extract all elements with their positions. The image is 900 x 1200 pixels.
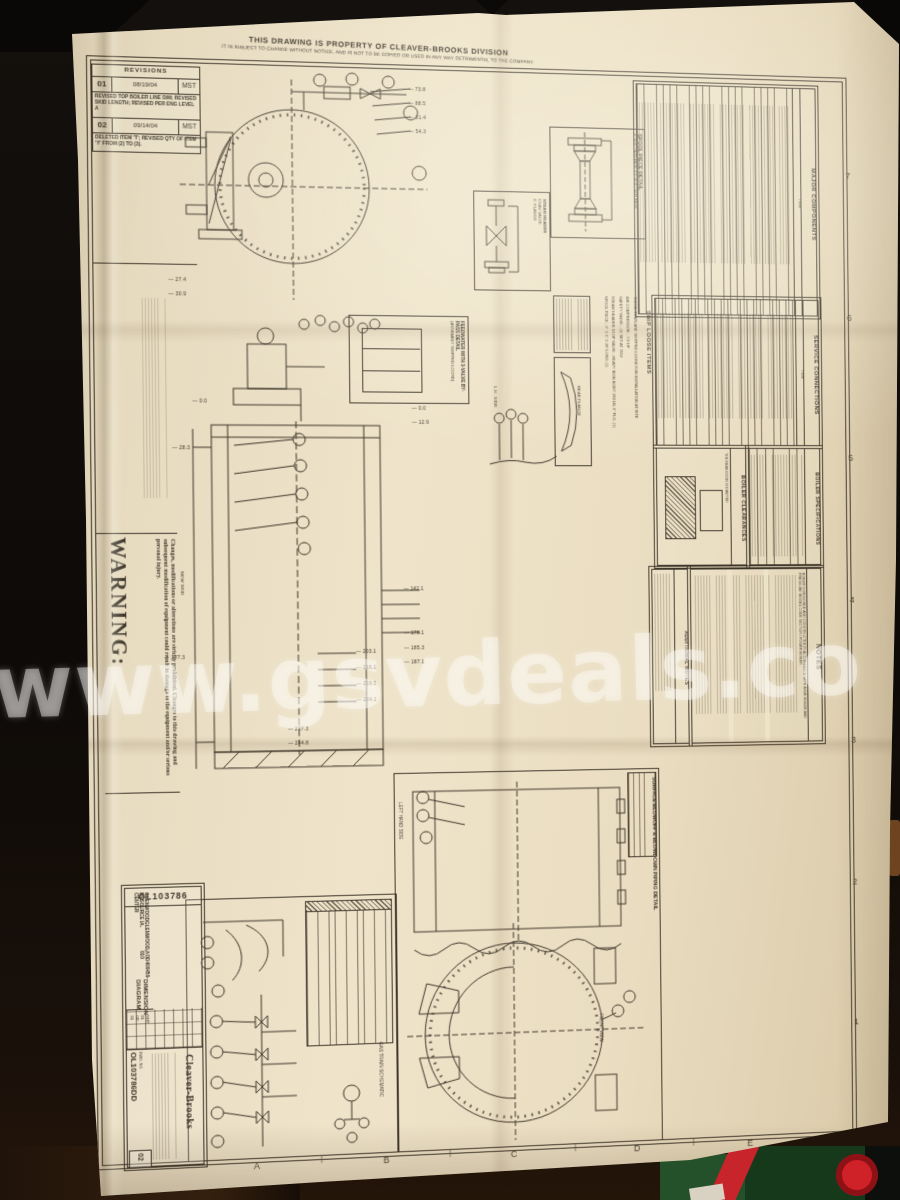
surface-blowoff-panel: SURFACE BLOWOFF & BLOWDOWN PIPING DETAIL… <box>393 768 662 1153</box>
service-connections-title: SERVICE CONNECTIONS <box>802 301 819 445</box>
dim-label: 28.3 <box>172 445 190 451</box>
lh-side-piping-drawing <box>485 404 561 474</box>
project-line2: GLENWOOD, IA. <box>129 921 150 952</box>
grid-number: 6 <box>847 313 852 323</box>
dwg-no-value: OL103786DD <box>129 1052 140 1163</box>
clearances-note: THE REAR DOOR IS DAVITED <box>724 453 729 559</box>
ship-loose-items: SHIP LOOSE ITEMS THESE ITEMS ARE SHIPPED… <box>594 294 652 476</box>
dim-label: 54.3 <box>409 129 426 135</box>
feedwater-detail-box: FEEDWATER WITH 3-VALVE BY-PASS DETAIL (A… <box>348 315 469 404</box>
table-row-text <box>751 455 803 557</box>
boiler-specifications-title: BOILER SPECIFICATIONS <box>804 449 820 564</box>
sheet-number: SHT 01 OF 01 <box>130 1015 151 1024</box>
grid-tick: | <box>321 1156 323 1163</box>
additional-notes-box: ADDITIONAL NOTES <box>651 569 689 745</box>
boiler-clearances-box: BOILER CLEARANCES THE REAR DOOR IS DAVIT… <box>656 448 747 566</box>
dim-label: 30.9 <box>168 291 186 297</box>
feedwater-inner-rect <box>362 328 423 393</box>
dim-label: 27.4 <box>168 277 186 283</box>
dim-label: 0.0 <box>192 398 207 404</box>
grid-number: 2 <box>853 877 858 887</box>
boiler-specifications-table: BOILER SPECIFICATIONS <box>748 448 821 565</box>
rev-no: 02 <box>93 118 113 133</box>
photo-of-blueprint: A B C D E | | | | 7 6 5 4 3 2 1 THIS DRA… <box>0 0 900 1200</box>
dim-label: 88.5 <box>408 101 425 107</box>
grid-letter: A <box>254 1161 260 1171</box>
clearances-diagram <box>665 476 696 539</box>
dim-label: 177.3 <box>164 655 185 661</box>
small-item-table-text <box>556 298 588 350</box>
dim-label: 12.9 <box>412 420 429 426</box>
rear-flange-label: REAR FLANGE <box>576 386 581 442</box>
table-row-text <box>657 313 794 419</box>
item-column-header: ITEM <box>795 301 805 445</box>
grid-number: 4 <box>850 595 855 605</box>
blowoff-views-drawing <box>394 769 661 1152</box>
dim-label: 203.1 <box>356 649 377 655</box>
dim-label: 142.1 <box>404 586 424 592</box>
table-row-text <box>639 102 792 265</box>
gas-train-panel: GAS TRAIN SCHEMATIC <box>185 894 399 1163</box>
grid-letter: C <box>511 1149 518 1159</box>
revision-number-box: 02 <box>129 1150 152 1169</box>
grid-number: 5 <box>848 453 853 463</box>
dim-label: 187.1 <box>404 659 424 665</box>
notes-text <box>654 574 673 692</box>
gas-train-drawing <box>186 895 398 1162</box>
clearances-diagram-rect <box>700 490 723 531</box>
feedwater-label: FEEDWATER WITH 3-VALVE BY-PASS DETAIL <box>455 321 466 399</box>
spool-piece-drawing <box>550 128 645 239</box>
rev-date: 09/14/04 <box>113 118 179 134</box>
wood-sliver <box>889 820 900 876</box>
dim-label: 81.4 <box>409 115 426 121</box>
dim-label: 244.8 <box>288 740 309 746</box>
project-line3: AOD400456-010 <box>129 951 150 980</box>
blueprint-sheet: A B C D E | | | | 7 6 5 4 3 2 1 THIS DRA… <box>0 0 900 1200</box>
rev-no: 01 <box>92 77 112 92</box>
dim-label: 73.8 <box>408 87 425 94</box>
dim-label: 224.1 <box>356 697 376 703</box>
grid-tick: | <box>575 1144 577 1151</box>
revision-number: 02 <box>136 1153 143 1161</box>
dim-label: 237.3 <box>288 726 309 732</box>
new-skid-label: NEW SKID <box>180 571 186 612</box>
project-line1: GLENWOOD RESOURCE CENTER <box>128 892 149 921</box>
feedwater-sublabel: (ASSEMBLY SHIPPED LOOSE) <box>450 321 456 399</box>
notes-text <box>695 575 797 714</box>
dim-label: 0.0 <box>412 406 426 412</box>
grid-letter: E <box>747 1138 753 1148</box>
grid-tick: | <box>449 1150 451 1157</box>
grid-number: 1 <box>854 1016 859 1026</box>
rear-flange-detail: REAR FLANGE <box>554 357 592 466</box>
dim-label: 219.1 <box>356 681 377 687</box>
grid-tick: | <box>693 1139 695 1146</box>
grid-letter: D <box>634 1143 640 1153</box>
grid-letter: B <box>383 1155 389 1165</box>
drawing-content: A B C D E | | | | 7 6 5 4 3 2 1 THIS DRA… <box>0 0 889 1200</box>
property-notice: THIS DRAWING IS PROPERTY OF CLEAVER-BROO… <box>186 32 568 67</box>
rear-flange-drawing <box>555 358 591 465</box>
notes-title: NOTES <box>806 569 822 741</box>
rev-date: 08/19/04 <box>112 77 178 93</box>
steam-header-label3: 6" FLANGE <box>532 199 538 285</box>
warning-title: WARNING: <box>105 537 134 791</box>
model-fields-text <box>152 1053 178 1160</box>
dim-label: 178.1 <box>404 630 424 636</box>
dim-label: 216.1 <box>356 665 377 671</box>
dim-label: 185.3 <box>404 645 424 651</box>
service-connections-table: SERVICE CONNECTIONS ITEM <box>654 298 820 446</box>
title-block: OL103786 GLENWOOD RESOURCE CENTER GLENWO… <box>124 886 205 1168</box>
spool-piece-detail-box: SPOOL PIECE DETAIL 6" SLIP ON FLANGE X 6… <box>549 127 646 240</box>
boiler-top-view-drawing <box>170 70 436 310</box>
company-logo: Cleaver-Brooks <box>183 1054 195 1160</box>
steam-header-label: STEAM HEADER <box>542 199 548 285</box>
steam-header-detail-box: STEAM HEADER CSAV VALVE 6" FLANGE <box>473 190 551 291</box>
notes-box: NOTES BOILER IS DESIGNED AND CONSTRUCTED… <box>690 568 823 744</box>
additional-notes-title: ADDITIONAL NOTES <box>673 570 688 743</box>
boiler-clearances-title: BOILER CLEARANCES <box>730 449 746 565</box>
sheet-title: DIMENSION DIAGRAM <box>130 979 149 1015</box>
major-components-table: MAJOR COMPONENTS ITEM <box>636 83 818 316</box>
red-circle-graphic <box>836 1154 878 1196</box>
grid-number: 7 <box>845 171 850 181</box>
small-item-table <box>553 295 591 353</box>
steam-header-label2: CSAV VALVE <box>537 199 543 285</box>
grid-number: 3 <box>851 735 856 745</box>
